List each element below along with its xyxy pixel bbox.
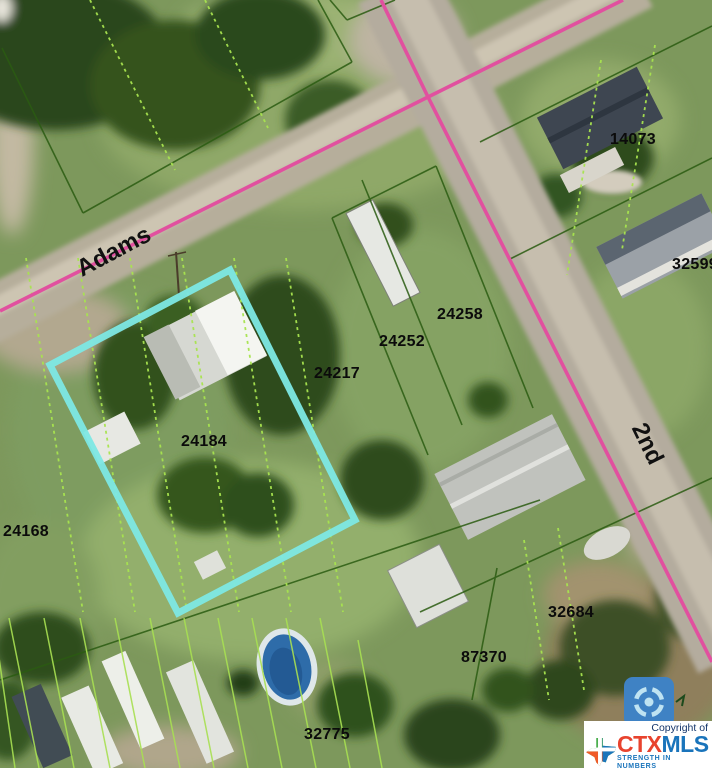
parcel-label-32775: 32775 — [304, 726, 350, 744]
satellite-imagery — [0, 0, 712, 768]
ctxmls-watermark: Copyright of CTXMLS STRENGTH IN — [584, 721, 712, 768]
ctxmls-logo: CTXMLS STRENGTH IN NUMBERS — [584, 733, 712, 768]
parcel-label-24168: 24168 — [3, 523, 49, 541]
parcel-label-24258: 24258 — [437, 306, 483, 324]
parcel-label-24217: 24217 — [314, 365, 360, 383]
parcel-label-32599: 32599 — [672, 256, 712, 274]
parcel-label-24252: 24252 — [379, 333, 425, 351]
compass-locate-icon — [629, 682, 669, 722]
ctxmls-wordmark: CTXMLS — [617, 733, 712, 755]
ctxmls-texas-logo-icon — [586, 738, 616, 766]
parcel-label-32684: 32684 — [548, 604, 594, 622]
logo-ctx-text: CTX — [617, 731, 662, 757]
locate-button[interactable] — [624, 677, 674, 727]
parcel-label-87370: 87370 — [461, 649, 507, 667]
logo-mls-text: MLS — [662, 731, 709, 757]
parcel-label-14073: 14073 — [610, 131, 656, 149]
ctxmls-tagline: STRENGTH IN NUMBERS — [617, 755, 712, 768]
aerial-map[interactable]: 14073 32599 24258 24252 24217 24184 2416… — [0, 0, 712, 768]
parcel-label-24184: 24184 — [181, 433, 227, 451]
